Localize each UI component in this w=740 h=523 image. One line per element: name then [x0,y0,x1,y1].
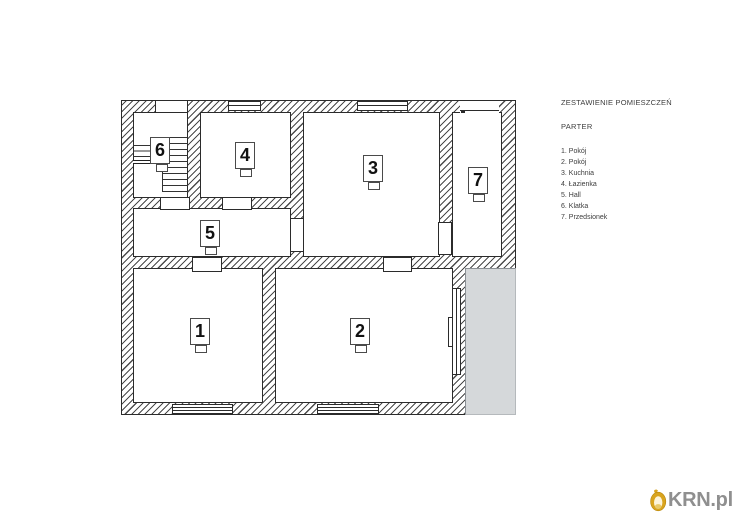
room-sublabel-1 [195,345,207,353]
legend-item-6: 6. Klatka [561,201,731,212]
room-sublabel-2 [355,345,367,353]
legend-item-2: 2. Pokój [561,157,731,168]
legend-item-1: 1. Pokój [561,146,731,157]
door-room2-terrace [448,317,453,347]
window-top-room3 [357,101,408,111]
door-hall-to-room3 [290,218,304,252]
room-sublabel-3 [368,182,380,190]
room-sublabel-5 [205,247,217,255]
watermark: KRN.pl [649,488,733,512]
room-label-6: 6 [150,137,170,164]
room-label-5: 5 [200,220,220,247]
window-room2-terrace [452,288,461,375]
room-number: 7 [473,170,483,191]
room-number: 6 [155,140,165,161]
legend-title: ZESTAWIENIE POMIESZCZEŃ [561,99,731,107]
room-number: 3 [368,158,378,179]
room-label-7: 7 [468,167,488,194]
window-top-room4 [228,101,261,111]
legend: ZESTAWIENIE POMIESZCZEŃ PARTER 1. Pokój … [561,99,731,223]
entrance-door-room7 [460,101,499,113]
room-number: 1 [195,321,205,342]
door-hinge-mark [461,110,465,113]
room-number: 4 [240,145,250,166]
door-hall-to-room1 [192,257,222,272]
floor-plan: 1 2 3 4 5 6 7 [121,100,516,415]
room-sublabel-7 [473,194,485,202]
window-bottom-room2 [317,404,379,414]
door-leaf-line [460,110,499,111]
room-label-1: 1 [190,318,210,345]
floor-plan-page: 1 2 3 4 5 6 7 ZESTAWIENIE POMIESZCZEŃ PA… [0,0,740,523]
krn-logo-icon [649,488,667,512]
door-hall-to-room6 [160,197,190,210]
room-label-2: 2 [350,318,370,345]
door-hall-to-room4 [222,197,252,210]
room-number: 5 [205,223,215,244]
krn-logo-text: KRN.pl [668,489,733,512]
legend-item-7: 7. Przedsionek [561,212,731,223]
legend-item-5: 5. Hall [561,190,731,201]
room-sublabel-6 [156,164,168,172]
room-label-4: 4 [235,142,255,169]
room-number: 2 [355,321,365,342]
door-room7-to-room3 [438,222,452,255]
legend-floor: PARTER [561,123,731,131]
door-room3-to-room2 [383,257,412,272]
legend-item-3: 3. Kuchnia [561,168,731,179]
door-top-room6 [155,100,188,113]
room-label-3: 3 [363,155,383,182]
legend-item-4: 4. Łazienka [561,179,731,190]
window-bottom-room1 [172,404,233,414]
terrace [465,268,516,415]
room-sublabel-4 [240,169,252,177]
